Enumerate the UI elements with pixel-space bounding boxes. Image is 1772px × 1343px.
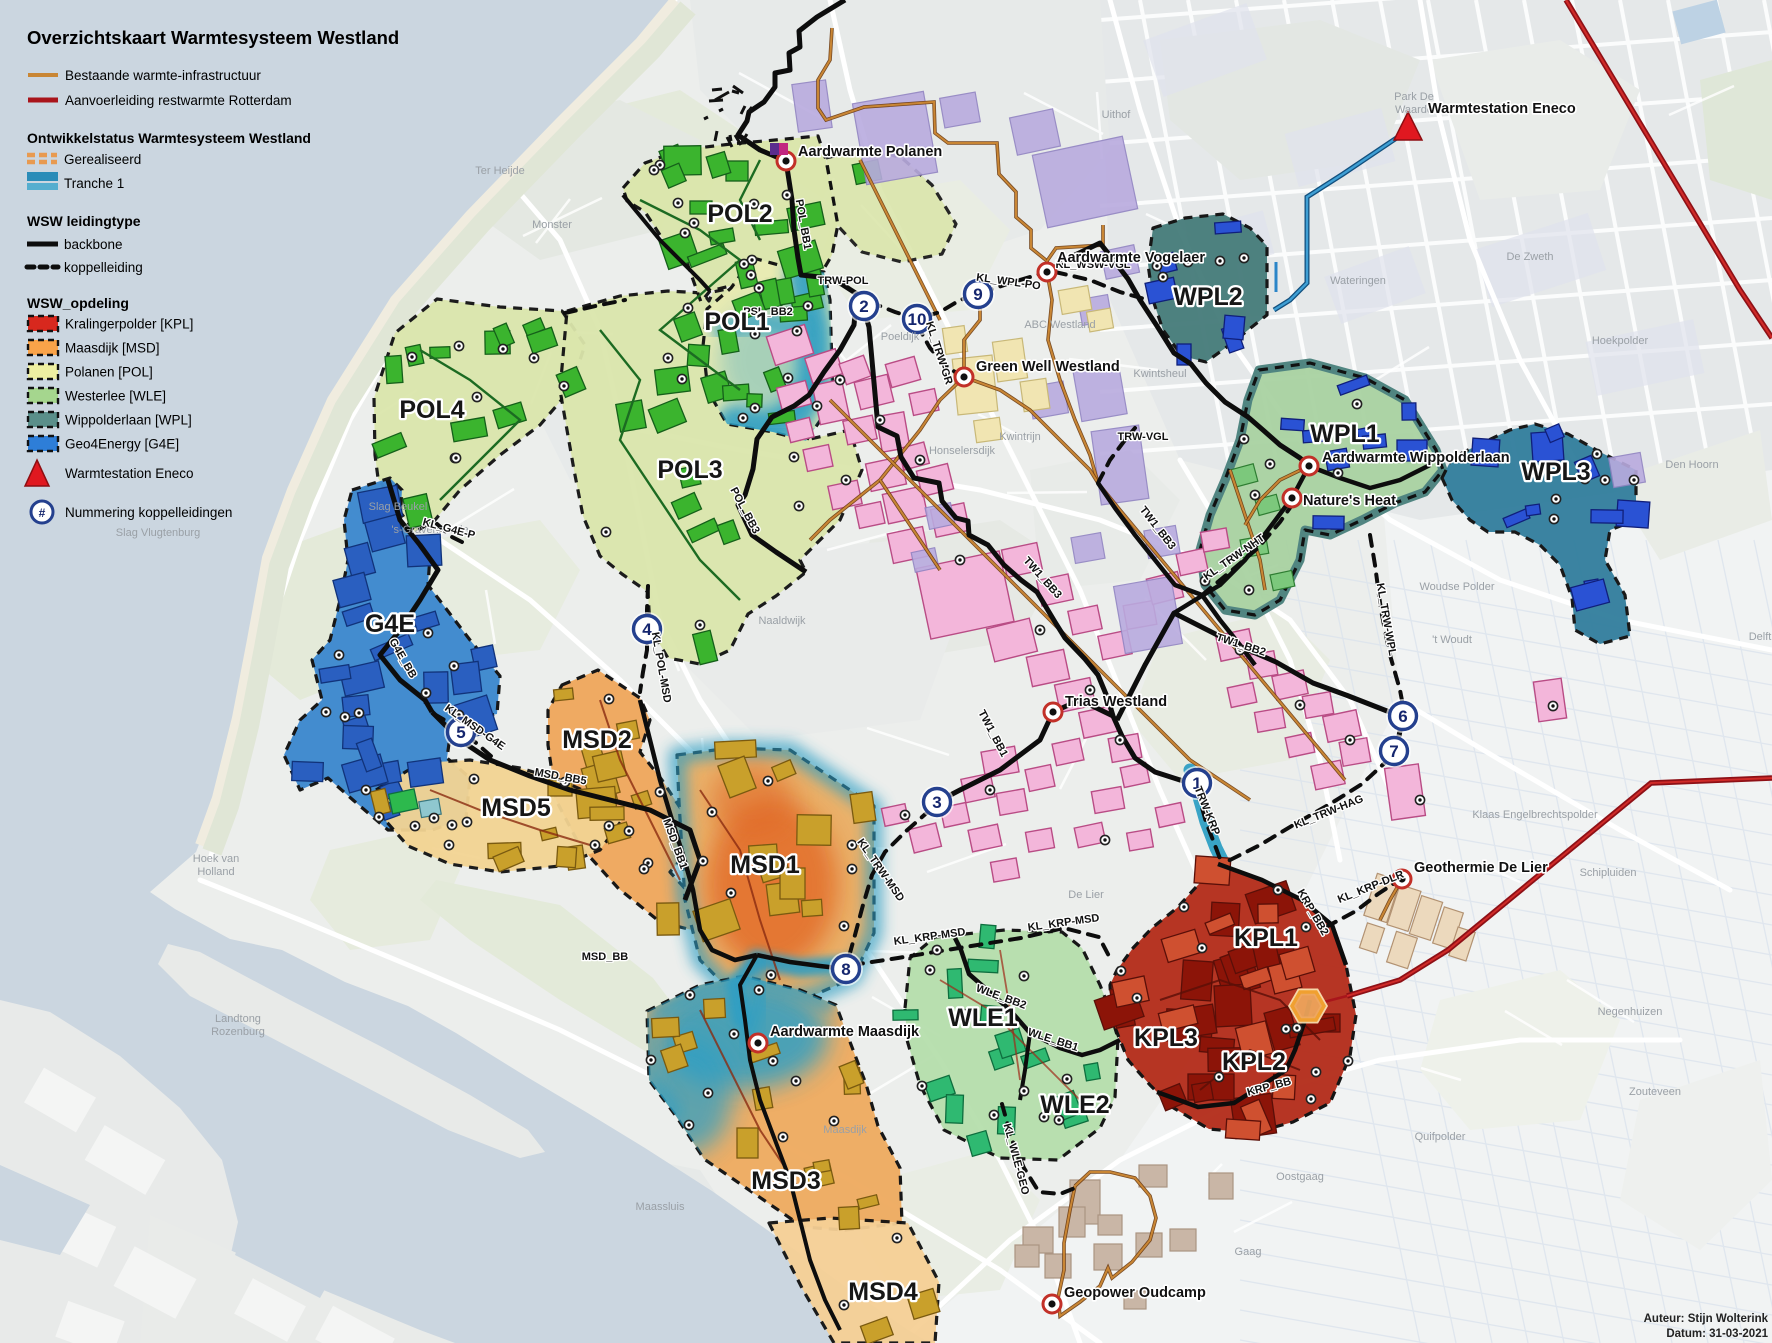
svg-text:Woudse Polder: Woudse Polder — [1419, 581, 1494, 593]
svg-text:WLE1: WLE1 — [948, 1004, 1018, 1032]
svg-text:Datum: 31-03-2021: Datum: 31-03-2021 — [1666, 1328, 1768, 1340]
svg-text:MSD2: MSD2 — [562, 726, 631, 754]
svg-text:Klaas Engelbrechtspolder: Klaas Engelbrechtspolder — [1472, 809, 1598, 821]
svg-text:Warmtestation Eneco: Warmtestation Eneco — [65, 466, 194, 481]
svg-text:Aardwarmte Polanen: Aardwarmte Polanen — [798, 144, 942, 160]
svg-text:POL4: POL4 — [399, 396, 464, 424]
svg-text:Monster: Monster — [532, 219, 572, 231]
svg-text:Quifpolder: Quifpolder — [1415, 1131, 1466, 1143]
svg-text:Wateringen: Wateringen — [1330, 275, 1386, 287]
svg-text:Kwintrijn: Kwintrijn — [999, 431, 1041, 443]
svg-text:Slag Vlugtenburg: Slag Vlugtenburg — [116, 527, 200, 539]
svg-text:WPL2: WPL2 — [1173, 283, 1242, 311]
svg-text:MSD1: MSD1 — [730, 851, 800, 879]
svg-text:WPL3: WPL3 — [1521, 458, 1590, 486]
svg-text:POL3: POL3 — [657, 456, 722, 484]
svg-text:Oostgaag: Oostgaag — [1276, 1171, 1324, 1183]
svg-text:3: 3 — [932, 793, 941, 812]
svg-text:Aardwarmte Wippolderlaan: Aardwarmte Wippolderlaan — [1322, 450, 1510, 466]
svg-text:Kralingerpolder [KPL]: Kralingerpolder [KPL] — [65, 317, 193, 332]
svg-text:Polanen [POL]: Polanen [POL] — [65, 365, 153, 380]
svg-text:9: 9 — [973, 285, 982, 304]
svg-text:De Zweth: De Zweth — [1506, 251, 1553, 263]
svg-text:LandtongRozenburg: LandtongRozenburg — [211, 1013, 265, 1038]
svg-text:#: # — [39, 506, 46, 520]
svg-text:Maassluis: Maassluis — [636, 1201, 685, 1213]
svg-text:WSW leidingtype: WSW leidingtype — [27, 213, 141, 229]
svg-text:POL1: POL1 — [704, 308, 769, 336]
svg-text:TRW-VGL: TRW-VGL — [1118, 431, 1169, 443]
svg-text:koppelleiding: koppelleiding — [64, 260, 143, 275]
svg-text:backbone: backbone — [64, 237, 123, 252]
svg-text:KPL1: KPL1 — [1234, 924, 1298, 952]
svg-text:KPL3: KPL3 — [1134, 1024, 1198, 1052]
svg-text:ABC Westland: ABC Westland — [1024, 319, 1095, 331]
svg-text:Bestaande warmte-infrastructuu: Bestaande warmte-infrastructuur — [65, 68, 261, 83]
svg-text:Wippolderlaan [WPL]: Wippolderlaan [WPL] — [65, 413, 192, 428]
svg-text:Uithof: Uithof — [1102, 109, 1132, 121]
svg-text:Ontwikkelstatus Warmtesysteem: Ontwikkelstatus Warmtesysteem Westland — [27, 130, 311, 146]
svg-text:Green Well Westland: Green Well Westland — [976, 359, 1120, 375]
svg-text:Auteur: Stijn Wolterink: Auteur: Stijn Wolterink — [1644, 1313, 1769, 1325]
svg-text:Hoek vanHolland: Hoek vanHolland — [193, 853, 239, 878]
svg-text:De Lier: De Lier — [1068, 889, 1104, 901]
svg-text:Overzichtskaart Warmtesysteem: Overzichtskaart Warmtesysteem Westland — [27, 27, 399, 48]
svg-text:7: 7 — [1389, 742, 1398, 761]
svg-text:Tranche 1: Tranche 1 — [64, 176, 124, 191]
svg-text:Den Hoorn: Den Hoorn — [1665, 459, 1718, 471]
svg-text:Maasdijk [MSD]: Maasdijk [MSD] — [65, 341, 160, 356]
svg-text:6: 6 — [1398, 707, 1407, 726]
svg-text:POL2: POL2 — [707, 200, 772, 228]
svg-text:Naaldwijk: Naaldwijk — [758, 615, 806, 627]
svg-text:Nature's Heat: Nature's Heat — [1303, 493, 1396, 509]
svg-text:Gaag: Gaag — [1235, 1246, 1262, 1258]
svg-text:WLE2: WLE2 — [1040, 1091, 1109, 1119]
svg-text:Zouteveen: Zouteveen — [1629, 1086, 1681, 1098]
svg-text:MSD5: MSD5 — [481, 794, 551, 822]
svg-text:Aardwarmte Vogelaer: Aardwarmte Vogelaer — [1057, 250, 1205, 266]
svg-text:Westerlee [WLE]: Westerlee [WLE] — [65, 389, 166, 404]
svg-text:2: 2 — [859, 297, 868, 316]
svg-text:WSW_opdeling: WSW_opdeling — [27, 295, 129, 311]
svg-text:MSD_BB: MSD_BB — [582, 951, 629, 963]
svg-text:Slag Beukel: Slag Beukel — [369, 501, 428, 513]
svg-text:KPL2: KPL2 — [1222, 1048, 1286, 1076]
svg-text:Geo4Energy [G4E]: Geo4Energy [G4E] — [65, 437, 179, 452]
svg-text:Kwintsheul: Kwintsheul — [1133, 368, 1186, 380]
svg-text:Warmtestation Eneco: Warmtestation Eneco — [1428, 101, 1576, 117]
svg-text:Schipluiden: Schipluiden — [1580, 867, 1637, 879]
svg-text:Maasdijk: Maasdijk — [823, 1124, 867, 1136]
svg-text:Nummering koppelleidingen: Nummering koppelleidingen — [65, 505, 232, 520]
svg-text:10: 10 — [908, 310, 927, 329]
svg-text:Hoekpolder: Hoekpolder — [1592, 335, 1649, 347]
svg-text:Geopower Oudcamp: Geopower Oudcamp — [1064, 1285, 1206, 1301]
svg-text:TRW-POL: TRW-POL — [818, 275, 869, 287]
svg-text:Aardwarmte Maasdijk: Aardwarmte Maasdijk — [770, 1024, 920, 1040]
svg-text:Trias Westland: Trias Westland — [1065, 694, 1167, 710]
svg-text:Honselersdijk: Honselersdijk — [929, 445, 996, 457]
svg-text:Delft: Delft — [1749, 631, 1772, 643]
svg-text:'t Woudt: 't Woudt — [1432, 634, 1472, 646]
svg-text:MSD3: MSD3 — [751, 1167, 820, 1195]
svg-text:MSD4: MSD4 — [848, 1278, 918, 1306]
svg-text:WPL1: WPL1 — [1310, 420, 1380, 448]
svg-text:8: 8 — [841, 960, 850, 979]
svg-text:Negenhuizen: Negenhuizen — [1598, 1006, 1663, 1018]
svg-text:Aanvoerleiding restwarmte Rott: Aanvoerleiding restwarmte Rotterdam — [65, 93, 292, 108]
svg-text:Ter Heijde: Ter Heijde — [475, 165, 525, 177]
svg-text:G4E: G4E — [365, 610, 415, 638]
svg-text:Poeldijk: Poeldijk — [881, 331, 920, 343]
svg-text:Gerealiseerd: Gerealiseerd — [64, 152, 141, 167]
svg-text:Geothermie De Lier: Geothermie De Lier — [1414, 860, 1548, 876]
